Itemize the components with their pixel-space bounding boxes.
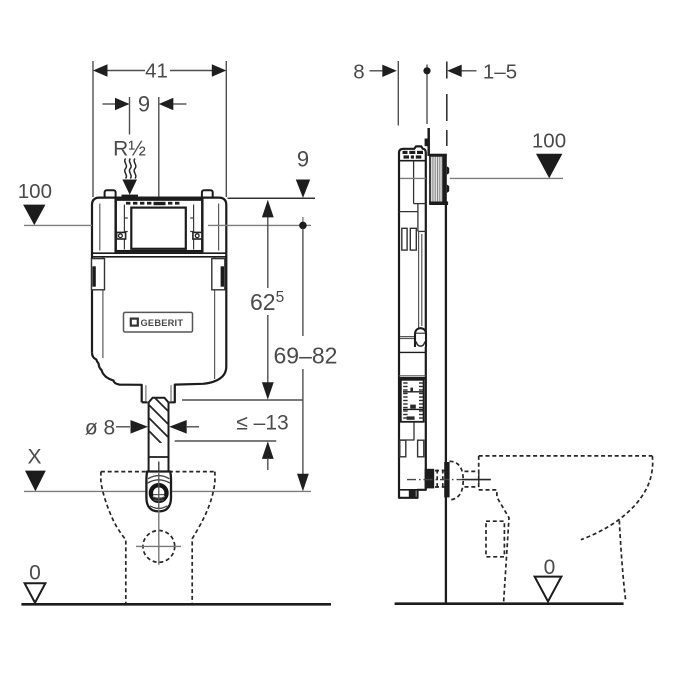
svg-text:≤ –13: ≤ –13: [236, 412, 288, 435]
svg-text:0: 0: [544, 556, 556, 579]
svg-text:ø 8: ø 8: [85, 417, 115, 440]
svg-text:9: 9: [138, 92, 150, 117]
svg-text:0: 0: [29, 562, 41, 585]
svg-text:R½: R½: [113, 138, 146, 161]
svg-text:100: 100: [532, 130, 566, 153]
svg-text:41: 41: [145, 60, 168, 83]
svg-text:X: X: [27, 446, 41, 469]
svg-text:9: 9: [297, 147, 309, 172]
svg-text:GEBERIT: GEBERIT: [141, 318, 184, 328]
svg-text:100: 100: [18, 180, 52, 203]
svg-text:69–82: 69–82: [274, 343, 338, 369]
svg-text:1–5: 1–5: [483, 60, 517, 83]
svg-text:8: 8: [353, 60, 364, 83]
